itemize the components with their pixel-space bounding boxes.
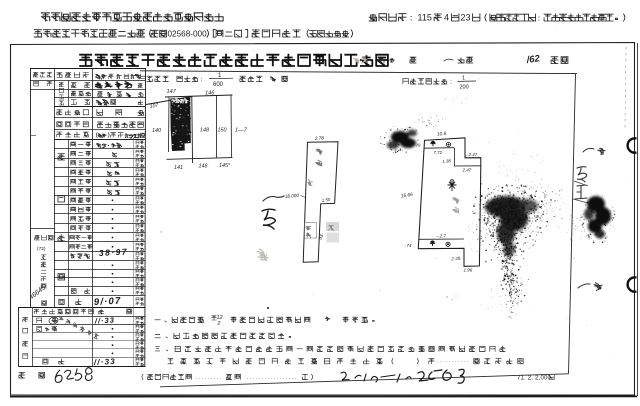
svg-text:(72): (72) bbox=[37, 246, 46, 252]
svg-text:140: 140 bbox=[152, 128, 161, 134]
svg-text:146: 146 bbox=[205, 91, 215, 97]
svg-text:1.38: 1.38 bbox=[442, 158, 451, 164]
svg-text:23: 23 bbox=[461, 13, 471, 23]
svg-text:115: 115 bbox=[418, 13, 432, 23]
svg-text:1.50: 1.50 bbox=[321, 197, 331, 203]
svg-text:2.47: 2.47 bbox=[462, 168, 472, 173]
svg-text:38·97: 38·97 bbox=[99, 246, 129, 258]
svg-text:9/·07: 9/·07 bbox=[94, 296, 122, 308]
svg-text:145°: 145° bbox=[219, 163, 231, 169]
svg-text:10.6: 10.6 bbox=[437, 131, 447, 137]
svg-text:148: 148 bbox=[200, 128, 209, 134]
svg-text:7.72: 7.72 bbox=[434, 150, 443, 155]
svg-text:600: 600 bbox=[213, 82, 224, 88]
svg-text:4: 4 bbox=[444, 13, 449, 23]
svg-text:150: 150 bbox=[218, 128, 227, 134]
svg-text:18.000: 18.000 bbox=[285, 193, 300, 199]
svg-text:200: 200 bbox=[460, 85, 469, 91]
svg-text:1—7: 1—7 bbox=[235, 128, 248, 134]
svg-text:/62: /62 bbox=[525, 53, 541, 66]
svg-text://·33: //·33 bbox=[94, 315, 115, 325]
svg-text:←2.47: ←2.47 bbox=[464, 152, 478, 157]
svg-text:2·28: 2·28 bbox=[450, 256, 461, 262]
svg-text:2.78: 2.78 bbox=[314, 135, 325, 141]
svg-text:→2.7: →2.7 bbox=[435, 234, 446, 239]
svg-text:71. 2. 2,000: 71. 2. 2,000 bbox=[517, 376, 552, 382]
svg-text:2: 2 bbox=[217, 321, 221, 327]
svg-text:107: 107 bbox=[149, 102, 160, 110]
svg-text:·74: ·74 bbox=[405, 243, 412, 248]
svg-text:02568-000: 02568-000 bbox=[168, 30, 208, 39]
svg-text:1.96: 1.96 bbox=[464, 268, 473, 273]
svg-text:146: 146 bbox=[199, 164, 208, 170]
svg-text:16.66: 16.66 bbox=[400, 192, 413, 200]
svg-text:1: 1 bbox=[462, 76, 465, 82]
svg-text://·33: //·33 bbox=[93, 357, 116, 367]
svg-text:141: 141 bbox=[174, 165, 183, 171]
svg-text:147: 147 bbox=[167, 89, 177, 95]
svg-text:65·: 65· bbox=[317, 232, 326, 241]
